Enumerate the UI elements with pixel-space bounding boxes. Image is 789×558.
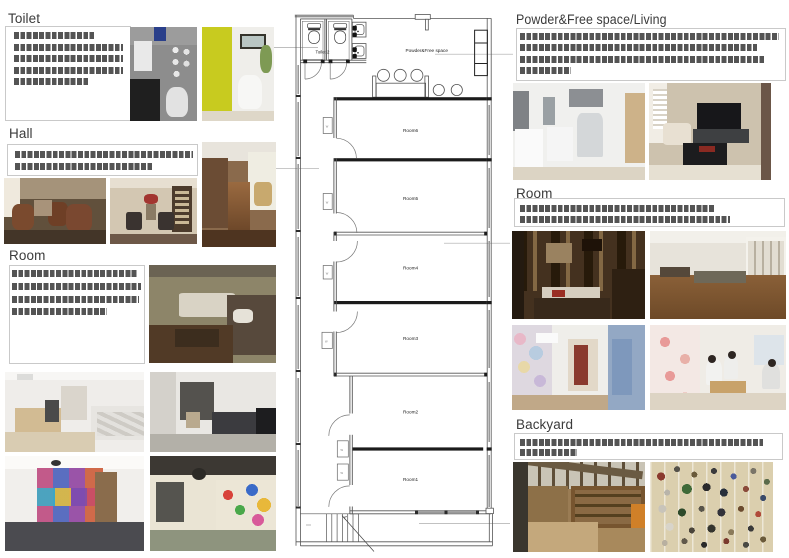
svg-text:w: w (341, 471, 344, 475)
svg-text:Room5: Room5 (403, 196, 419, 201)
svg-text:w: w (325, 340, 328, 344)
svg-text:Room1: Room1 (403, 477, 419, 482)
svg-text:w: w (326, 272, 329, 276)
svg-text:Toilet 2: Toilet 2 (316, 50, 330, 55)
svg-text:w: w (341, 448, 344, 452)
svg-text:Room3: Room3 (403, 336, 419, 341)
svg-text:Room4: Room4 (403, 266, 419, 271)
svg-text:Powder&Free space: Powder&Free space (406, 48, 449, 53)
svg-text:w: w (326, 201, 329, 205)
svg-text:Room2: Room2 (403, 410, 419, 415)
svg-text:w: w (326, 125, 329, 129)
svg-text:Room6: Room6 (403, 128, 419, 133)
